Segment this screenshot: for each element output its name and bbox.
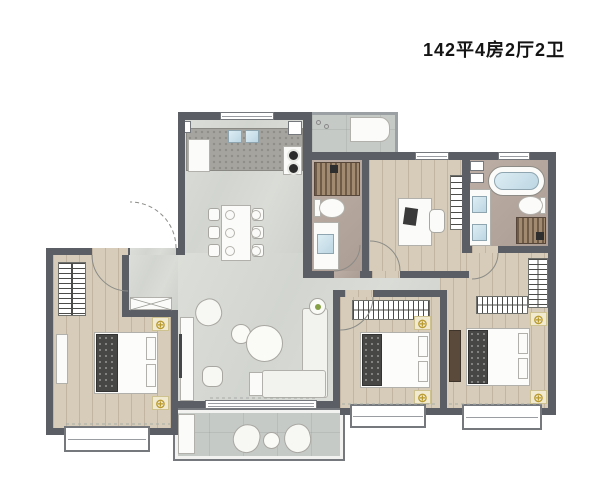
wall — [122, 310, 178, 317]
wall — [46, 248, 53, 435]
toilet — [518, 196, 543, 215]
dining-chair — [208, 226, 220, 239]
pillow — [518, 358, 528, 379]
entry-door-arc — [130, 202, 176, 248]
toilet — [319, 198, 345, 218]
nightstand-light-symbol: ⊕ — [152, 317, 169, 331]
stove-burner-icon — [287, 162, 300, 175]
faucet-icon — [324, 124, 329, 129]
wall — [303, 112, 312, 278]
balcony-cabinet — [178, 414, 195, 454]
washing-machine — [350, 117, 390, 142]
window — [498, 152, 530, 160]
sofa-chaise — [262, 370, 326, 398]
nightstand-light-symbol: ⊕ — [152, 396, 169, 410]
faucet-icon — [316, 120, 321, 125]
bed-blanket — [468, 330, 488, 384]
door-opening — [92, 248, 128, 255]
dining-chair — [252, 226, 264, 239]
nightstand-light-symbol: ⊕ — [530, 390, 547, 404]
kitchen-flue-right — [288, 121, 302, 135]
sliding-door — [205, 400, 317, 409]
laptop-icon — [403, 207, 418, 226]
pouf — [202, 366, 223, 387]
master-dresser — [449, 330, 461, 382]
nightstand-light-symbol: ⊕ — [414, 316, 431, 330]
coffee-table-large — [246, 325, 283, 362]
shoe-cabinet — [130, 297, 172, 310]
wall — [122, 255, 129, 317]
wardrobe — [58, 262, 86, 316]
pillow — [146, 364, 156, 387]
stove — [283, 146, 302, 175]
kitchen-sink-left — [228, 130, 242, 143]
wall — [333, 290, 340, 408]
vanity-sink — [472, 196, 487, 213]
dining-chair — [208, 208, 220, 221]
dining-chair — [208, 244, 220, 257]
bathtub-water — [494, 172, 539, 190]
door-opening — [372, 271, 400, 278]
window — [220, 112, 274, 120]
wall — [548, 158, 556, 415]
bay-window — [462, 404, 542, 430]
wall — [440, 290, 447, 415]
shower-head-icon — [330, 165, 338, 173]
wardrobe — [528, 258, 548, 308]
balcony-table — [263, 432, 280, 449]
fridge — [188, 139, 210, 172]
light-glyph-icon: ⊕ — [417, 390, 428, 405]
wall — [178, 112, 185, 255]
bed-blanket — [362, 334, 382, 386]
wall — [362, 160, 369, 271]
bath-niche — [470, 161, 484, 171]
tv-icon — [179, 334, 182, 378]
bay-window — [350, 404, 426, 428]
dining-chair — [252, 208, 264, 221]
tv-console — [180, 317, 194, 401]
wall — [462, 160, 470, 253]
vanity-sink — [472, 224, 487, 241]
pillow — [146, 337, 156, 360]
plant-icon — [315, 304, 321, 310]
wall — [171, 310, 178, 435]
pillow — [418, 336, 428, 357]
bed-blanket — [96, 334, 118, 392]
stove-burner-icon — [287, 149, 300, 162]
light-glyph-icon: ⊕ — [533, 390, 544, 405]
kitchen-sink-right — [245, 130, 259, 143]
shower-head-icon — [536, 232, 544, 240]
dresser — [56, 334, 68, 384]
light-glyph-icon: ⊕ — [533, 312, 544, 327]
nightstand-light-symbol: ⊕ — [414, 390, 431, 404]
pillow — [518, 333, 528, 354]
wardrobe — [476, 296, 528, 314]
bath-niche — [470, 173, 484, 183]
dining-table — [221, 205, 251, 261]
sofa-side-table — [249, 372, 263, 396]
window — [415, 152, 449, 160]
door-opening — [334, 271, 360, 278]
vanity-sink — [317, 234, 334, 254]
entry-door-opening — [130, 248, 176, 255]
desk-chair — [429, 209, 445, 233]
light-glyph-icon: ⊕ — [155, 317, 166, 332]
pillow — [418, 361, 428, 382]
dining-chair — [252, 244, 264, 257]
floor-plan: ⊕ ⊕ ⊕ ⊕ ⊕ ⊕ — [0, 0, 600, 500]
nightstand-light-symbol: ⊕ — [530, 312, 547, 326]
door-opening — [345, 290, 373, 297]
light-glyph-icon: ⊕ — [155, 396, 166, 411]
door-opening — [472, 246, 498, 253]
bay-window — [64, 426, 150, 452]
light-glyph-icon: ⊕ — [417, 316, 428, 331]
plan-title: 142平4房2厅2卫 — [423, 36, 565, 62]
